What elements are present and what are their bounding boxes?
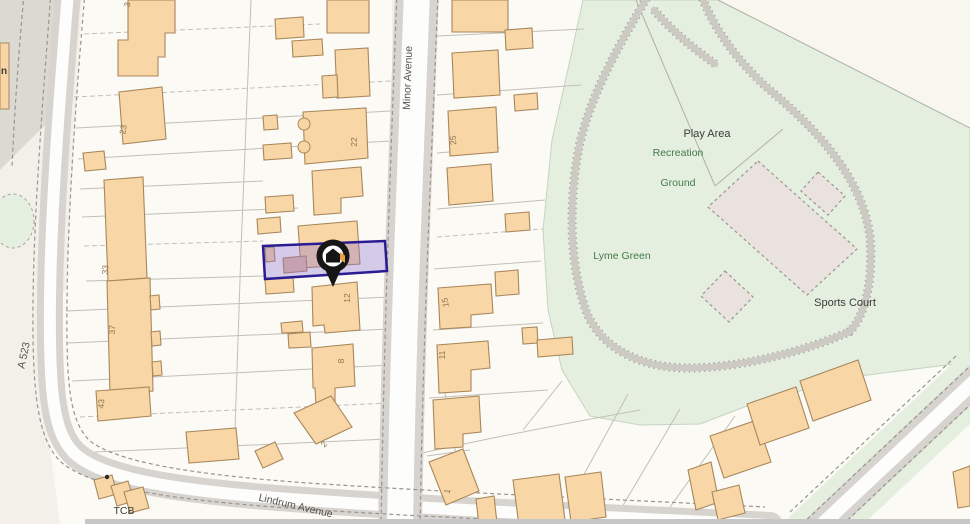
building — [322, 75, 338, 98]
building — [152, 361, 162, 376]
house-number-22: 22 — [349, 137, 359, 147]
house-number-25: 25 — [448, 135, 459, 146]
building-bay — [298, 118, 310, 130]
building — [495, 270, 519, 296]
building — [712, 485, 745, 520]
building — [505, 212, 530, 232]
area-label-lyme-green: Lyme Green — [593, 250, 651, 262]
building — [514, 93, 538, 111]
house-number-37: 37 — [107, 324, 118, 335]
building — [335, 48, 370, 98]
building — [565, 472, 606, 522]
building — [513, 474, 565, 524]
building — [447, 164, 493, 205]
building — [263, 143, 292, 160]
building — [275, 17, 304, 39]
house-number-11: 11 — [437, 350, 447, 359]
building — [537, 337, 573, 357]
house-number-43: 43 — [96, 398, 107, 409]
house-number-12: 12 — [342, 293, 352, 303]
building — [452, 0, 508, 32]
building — [83, 151, 106, 171]
building — [150, 295, 160, 310]
building — [292, 39, 323, 57]
building — [263, 115, 278, 130]
building — [186, 428, 239, 463]
building — [107, 278, 153, 395]
house-number-8: 8 — [336, 358, 346, 363]
map-point-marker — [105, 475, 109, 479]
building — [303, 108, 368, 164]
area-label-building-n: n — [1, 66, 7, 77]
map-canvas[interactable]: Minor AvenueA 523Lindrum AvenuePlay Area… — [0, 0, 970, 524]
bottom-edge-bar — [85, 519, 970, 524]
building — [151, 331, 161, 346]
building — [104, 177, 147, 281]
building — [265, 195, 294, 213]
area-label-recreation: Recreation — [653, 147, 704, 159]
area-label-tcb: TCB — [114, 505, 135, 517]
building — [281, 321, 303, 333]
building — [327, 0, 369, 33]
building-bay — [298, 141, 310, 153]
building — [288, 332, 311, 348]
building — [257, 217, 281, 234]
house-number-15: 15 — [439, 297, 451, 308]
building — [505, 28, 533, 50]
building — [522, 327, 538, 344]
building — [448, 107, 498, 156]
area-label-sports-court: Sports Court — [814, 297, 876, 309]
area-label-ground: Ground — [660, 177, 695, 189]
house-number-33: 33 — [100, 264, 111, 275]
street-label-minor-avenue: Minor Avenue — [401, 46, 415, 111]
property-location-map[interactable]: Minor AvenueA 523Lindrum AvenuePlay Area… — [0, 0, 970, 524]
building — [452, 50, 500, 98]
house-number-23: 23 — [117, 124, 129, 135]
area-label-play-area: Play Area — [683, 128, 731, 140]
building — [312, 282, 360, 333]
